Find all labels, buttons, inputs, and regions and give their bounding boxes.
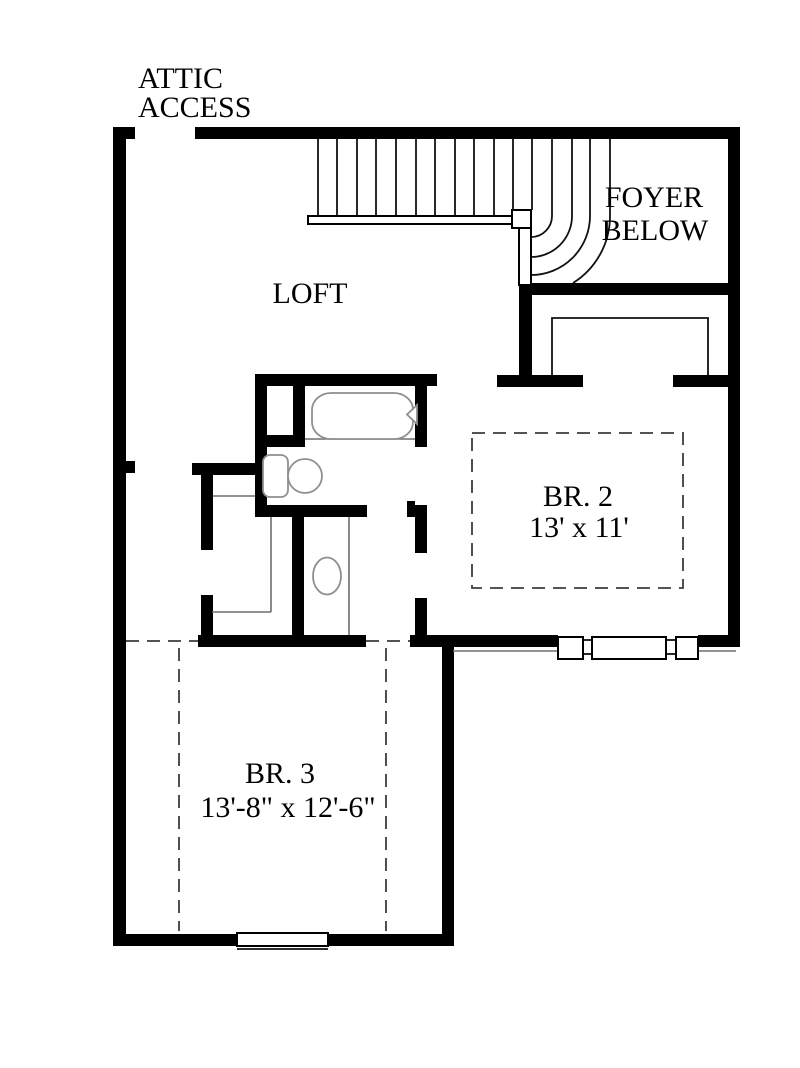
- toilet-symbol: [263, 455, 322, 497]
- hall-closet-top-wall: [192, 463, 255, 475]
- vanity-left-wall: [292, 517, 304, 647]
- br2-closet-wall-left-segment: [497, 375, 583, 387]
- loft-label: LOFT: [273, 277, 348, 310]
- winder-arcs: [531, 216, 610, 283]
- foyer-bottom-wall: [519, 283, 740, 295]
- bathroom-right-wall-middle: [415, 505, 427, 553]
- bathroom-top-wall: [255, 374, 437, 386]
- foyer-label-line1: FOYER: [605, 181, 703, 214]
- bathroom-bottom-wall: [255, 505, 367, 517]
- br3-bottom-exterior-wall-left: [113, 934, 236, 946]
- attic-access-label-line2: ACCESS: [138, 91, 251, 124]
- toilet-tank: [263, 455, 288, 497]
- br3-top-wall: [198, 635, 366, 647]
- stair-handrail: [308, 210, 531, 285]
- handrail-end-post: [512, 210, 531, 228]
- hall-closet-left-wall-upper: [201, 475, 213, 550]
- br2-closet-wall-right-segment: [673, 375, 740, 387]
- br2-dimensions: 13' x 11': [529, 511, 629, 544]
- toilet-bowl: [288, 459, 322, 493]
- stair-treads: [318, 139, 513, 216]
- br3-label: BR. 3: [245, 757, 315, 790]
- linen-closet-bottom-wall: [255, 435, 305, 447]
- stair-landing-edge: [519, 228, 531, 285]
- br2-label: BR. 2: [543, 480, 613, 513]
- br3-dimensions: 13'-8" x 12'-6": [200, 791, 375, 824]
- bathroom-door-jamb: [407, 501, 415, 517]
- br3-top-wall-right-jog: [410, 635, 443, 647]
- left-wall-joint-tab: [126, 461, 135, 473]
- left-exterior-wall: [113, 128, 126, 946]
- foyer-label-line2: BELOW: [602, 214, 709, 247]
- handrail-bar: [308, 216, 514, 224]
- br3-bottom-exterior-wall-right: [329, 934, 454, 946]
- br2-bottom-exterior-wall-right: [698, 635, 740, 647]
- bathtub-symbol: [312, 393, 417, 439]
- br3-right-exterior-wall: [442, 647, 454, 946]
- stair-landing-wall: [519, 283, 532, 386]
- sink-symbol: [313, 558, 341, 595]
- linen-closet-right-wall: [293, 386, 305, 435]
- floor-plan: ATTIC ACCESS FOYER BELOW LOFT BR. 2 13' …: [0, 0, 800, 1068]
- br2-bottom-exterior-wall-left: [430, 635, 558, 647]
- staircase: [308, 139, 610, 285]
- br2-closet-outline: [552, 318, 708, 375]
- top-exterior-wall: [195, 127, 740, 139]
- winder-treads: [532, 139, 610, 216]
- br3-window-symbol: [237, 933, 328, 949]
- bathroom-left-wall: [255, 386, 267, 517]
